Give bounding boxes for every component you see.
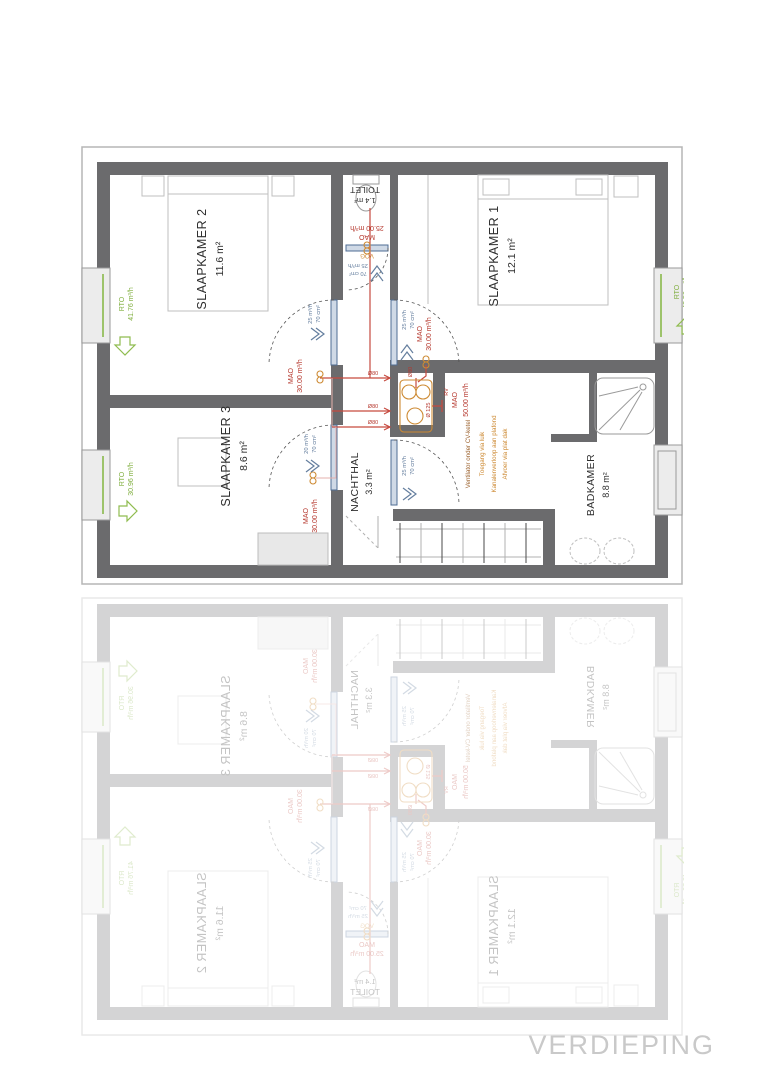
note-line3: Kanalenverloop aan plafond	[491, 415, 498, 493]
svg-text:TOILET: TOILET	[350, 987, 380, 997]
svg-text:MAO: MAO	[452, 774, 459, 791]
rto-value-slaapkamer3: 30.96 m³/h	[128, 462, 135, 496]
page: SLAAPKAMER 2 11.6 m² SLAAPKAMER 1 12.1 m…	[0, 0, 763, 1080]
mao-code-badkamer: MAO	[452, 391, 459, 408]
svg-text:RV: RV	[444, 786, 450, 794]
svg-text:20 m³/h: 20 m³/h	[304, 728, 310, 748]
technical-notes: Ventilator onder CV-ketel Toegang via lu…	[465, 415, 509, 493]
svg-text:25 m³/h: 25 m³/h	[402, 852, 408, 872]
svg-text:70 cm²: 70 cm²	[349, 906, 367, 912]
svg-text:41.76 m³/h: 41.76 m³/h	[128, 861, 135, 895]
window-badkamer	[654, 445, 682, 515]
svg-text:25 m³/h: 25 m³/h	[308, 858, 314, 878]
svg-text:30.96 m³/h: 30.96 m³/h	[128, 686, 135, 720]
vog-label: VOG	[360, 252, 374, 259]
svg-text:Toegang via luik: Toegang via luik	[479, 706, 486, 751]
chevron-slaapkamer3	[306, 460, 319, 472]
svg-text:30.00 m³/h: 30.00 m³/h	[312, 649, 319, 683]
duct-80-label-4: Ø80	[408, 367, 414, 377]
room-area-slaapkamer2: 11.6 m²	[214, 241, 226, 276]
floor-title: VERDIEPING	[528, 1030, 715, 1061]
duct-80-label-3: Ø80	[368, 420, 378, 426]
svg-text:Ventilator onder CV-ketel: Ventilator onder CV-ketel	[465, 694, 472, 762]
room-area-nachthal: 3.3 m²	[364, 469, 374, 495]
note-line4: Afvoer via plat dak	[502, 428, 509, 480]
door-section-badkamer: 70 cm²	[410, 457, 416, 475]
mao-value-slaapkamer3: 30.00 m³/h	[312, 499, 319, 533]
floor-plan-svg: SLAAPKAMER 2 11.6 m² SLAAPKAMER 1 12.1 m…	[80, 144, 684, 590]
mao-value-toilet: 25.00 m³/h	[350, 224, 384, 231]
door-slaapkamer1	[391, 300, 459, 365]
mao-code-slaapkamer3: MAO	[303, 507, 310, 524]
svg-text:Ø 125: Ø 125	[426, 765, 432, 780]
door-slaapkamer2	[269, 300, 337, 365]
room-area-slaapkamer1: 12.1 m²	[506, 238, 518, 274]
svg-text:Ø80: Ø80	[368, 805, 378, 811]
rto-value-slaapkamer1: 43.56 m³/h	[683, 275, 684, 309]
closet-slaapkamer3	[258, 533, 328, 565]
double-sink	[570, 538, 634, 564]
svg-text:70 cm²: 70 cm²	[410, 853, 416, 871]
door-flow-badkamer: 25 m³/h	[402, 456, 408, 476]
rto-code-slaapkamer3: RTO	[119, 471, 126, 486]
svg-text:25 m³/h: 25 m³/h	[402, 706, 408, 726]
svg-text:1.4 m²: 1.4 m²	[354, 977, 376, 986]
mao-code-slaapkamer2: MAO	[288, 367, 295, 384]
chevron-slaapkamer2	[311, 328, 324, 340]
svg-text:8.8 m²: 8.8 m²	[601, 684, 611, 710]
svg-text:NACHTHAL: NACHTHAL	[349, 670, 361, 730]
svg-text:70 cm²: 70 cm²	[312, 729, 318, 747]
room-name-badkamer: BADKAMER	[585, 454, 597, 516]
note-line1: Ventilator onder CV-ketel	[465, 420, 472, 488]
svg-text:3.3 m²: 3.3 m²	[364, 687, 374, 713]
room-area-slaapkamer3: 8.6 m²	[238, 441, 250, 471]
svg-text:70 cm²: 70 cm²	[410, 707, 416, 725]
window-slaapkamer3	[82, 450, 110, 520]
svg-text:Afvoer via plat dak: Afvoer via plat dak	[502, 703, 509, 755]
svg-text:Ø80: Ø80	[368, 756, 378, 762]
door-slaapkamer3	[269, 425, 337, 490]
svg-text:30.00 m³/h: 30.00 m³/h	[426, 831, 433, 865]
rv-label: RV	[444, 388, 450, 396]
rto-arrow-slaapkamer2	[115, 337, 135, 355]
room-name-slaapkamer3: SLAAPKAMER 3	[219, 405, 233, 506]
mao-value-slaapkamer1: 30.00 m³/h	[426, 317, 433, 351]
room-name-slaapkamer1: SLAAPKAMER 1	[487, 205, 501, 306]
duct-80-label-2: Ø80	[368, 404, 378, 410]
chevron-toilet	[371, 266, 383, 281]
bed-slaapkamer1	[478, 175, 638, 305]
door-flow-slaapkamer2: 25 m³/h	[308, 304, 314, 324]
svg-text:12.1 m²: 12.1 m²	[506, 908, 518, 944]
door-section-toilet: 70 cm²	[349, 270, 367, 276]
svg-text:25 m³/h: 25 m³/h	[348, 914, 368, 920]
room-area-toilet: 1.4 m²	[354, 196, 376, 205]
svg-text:Ø80: Ø80	[408, 805, 414, 815]
rto-value-slaapkamer2: 41.76 m³/h	[128, 287, 135, 321]
window-slaapkamer1	[654, 268, 682, 343]
svg-text:SLAAPKAMER 2: SLAAPKAMER 2	[195, 872, 209, 973]
chevron-badkamer	[403, 488, 416, 500]
mao-value-slaapkamer2: 30.00 m³/h	[297, 359, 304, 393]
door-flow-slaapkamer3: 20 m³/h	[304, 434, 310, 454]
door-flow-slaapkamer1: 25 m³/h	[402, 310, 408, 330]
room-name-toilet: TOILET	[350, 185, 380, 195]
rto-code-slaapkamer1: RTO	[674, 284, 681, 299]
rto-arrow-slaapkamer3	[119, 501, 137, 521]
svg-text:43.56 m³/h: 43.56 m³/h	[683, 873, 684, 907]
svg-text:RTO: RTO	[674, 883, 681, 898]
svg-text:30.00 m³/h: 30.00 m³/h	[297, 789, 304, 823]
window-slaapkamer2	[82, 268, 110, 343]
svg-text:SLAAPKAMER 3: SLAAPKAMER 3	[219, 675, 233, 776]
svg-text:11.6 m²: 11.6 m²	[214, 906, 226, 941]
duct-125-label: Ø 125	[426, 403, 432, 418]
valve-slaapkamer3	[310, 472, 316, 484]
valve-slaapkamer2	[317, 371, 323, 383]
svg-text:BADKAMER: BADKAMER	[585, 666, 597, 728]
mao-code-toilet: MAO	[358, 233, 375, 240]
door-section-slaapkamer1: 70 cm²	[410, 311, 416, 329]
chevron-slaapkamer1	[401, 345, 413, 360]
door-flow-toilet: 25 m³/h	[348, 262, 368, 268]
floor-plan-reflection: SLAAPKAMER 2 11.6 m² SLAAPKAMER 1 12.1 m…	[80, 592, 684, 1038]
room-name-slaapkamer2: SLAAPKAMER 2	[195, 208, 209, 309]
svg-text:VOG: VOG	[360, 923, 374, 930]
rto-code-slaapkamer2: RTO	[119, 296, 126, 311]
svg-text:SLAAPKAMER 1: SLAAPKAMER 1	[487, 875, 501, 976]
svg-text:Kanalenverloop aan plafond: Kanalenverloop aan plafond	[491, 689, 498, 767]
duct-80-label-1: Ø80	[368, 371, 378, 377]
mao-value-badkamer: 50.00 m³/h	[463, 383, 470, 417]
svg-text:50.00 m³/h: 50.00 m³/h	[463, 765, 470, 799]
stairs	[346, 516, 541, 563]
door-section-slaapkamer2: 70 cm²	[316, 305, 322, 323]
floor-plan: SLAAPKAMER 2 11.6 m² SLAAPKAMER 1 12.1 m…	[80, 144, 684, 590]
room-area-badkamer: 8.8 m²	[601, 472, 611, 498]
transfer-chevrons	[306, 266, 416, 500]
mao-code-slaapkamer1: MAO	[417, 325, 424, 342]
door-section-slaapkamer3: 70 cm²	[312, 435, 318, 453]
svg-text:MAO: MAO	[288, 798, 295, 815]
svg-text:8.6 m²: 8.6 m²	[238, 711, 250, 741]
svg-text:MAO: MAO	[417, 840, 424, 857]
svg-text:RTO: RTO	[119, 871, 126, 886]
svg-text:MAO: MAO	[358, 942, 375, 949]
svg-text:MAO: MAO	[303, 658, 310, 675]
svg-text:Ø80: Ø80	[368, 772, 378, 778]
shower	[595, 378, 654, 434]
note-line2: Toegang via luik	[479, 431, 486, 476]
svg-text:70 cm²: 70 cm²	[316, 859, 322, 877]
svg-text:25.00 m³/h: 25.00 m³/h	[350, 951, 384, 958]
room-name-nachthal: NACHTHAL	[349, 452, 361, 512]
svg-text:RTO: RTO	[119, 696, 126, 711]
